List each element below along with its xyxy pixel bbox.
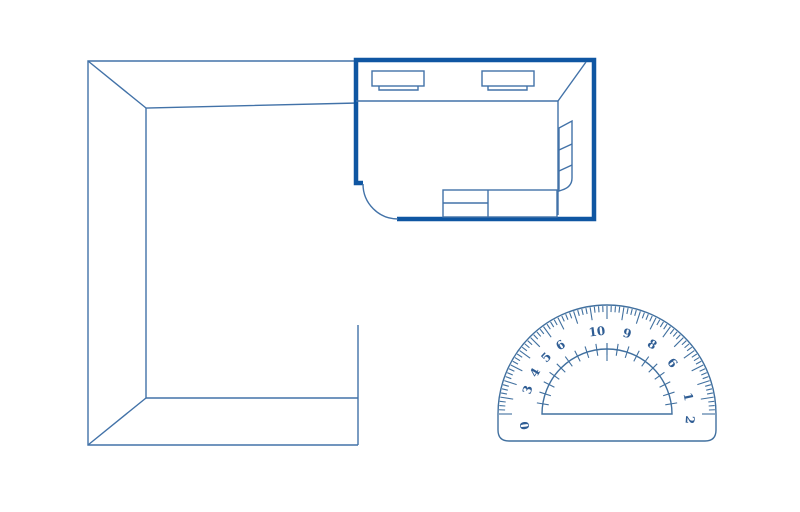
inner-wall-outline [146, 103, 358, 398]
shelf-divider [559, 144, 572, 150]
window-body [372, 71, 424, 86]
outer-wall-outline [88, 61, 358, 445]
shelf-divider [559, 165, 572, 171]
window-symbol-left [372, 71, 424, 90]
door-swing-arc [363, 184, 398, 219]
table-symbol [443, 190, 557, 217]
degree-tick-minor [594, 307, 595, 313]
technical-drawing: 034561098612 [0, 0, 800, 512]
illustration-canvas: 034561098612 [0, 0, 800, 512]
outer-wall-frame [88, 61, 358, 445]
interior-wall-line-diagonal [558, 62, 586, 101]
wall-miter-bottom-left-icon [88, 398, 146, 445]
window-body [482, 71, 534, 86]
room-floor-plan [356, 60, 594, 219]
wall-miter-top-left-icon [88, 61, 146, 108]
window-symbol-right [482, 71, 534, 90]
protractor: 034561098612 [498, 305, 716, 441]
shelf-unit-symbol [559, 121, 572, 191]
degree-tick-minor [619, 307, 620, 313]
shelf-outline [559, 121, 572, 191]
degree-tick-minor [500, 401, 506, 402]
degree-tick-minor [708, 401, 714, 402]
protractor-scale-number: 10 [588, 324, 606, 340]
protractor-scale-number: 2 [683, 415, 698, 424]
